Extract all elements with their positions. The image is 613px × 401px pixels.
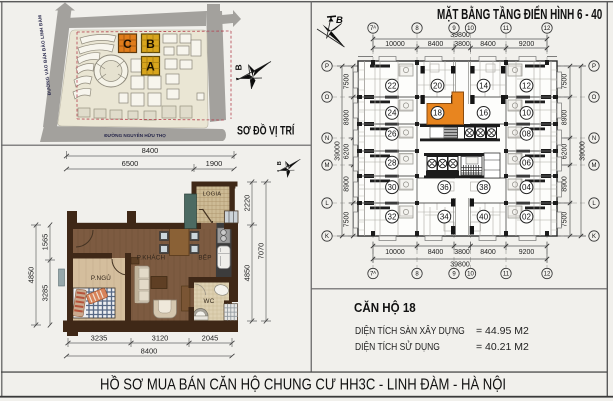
svg-text:7500: 7500 (562, 74, 569, 90)
svg-text:3800: 3800 (454, 41, 470, 48)
svg-text:7500: 7500 (562, 212, 569, 228)
svg-text:7500: 7500 (344, 212, 351, 228)
svg-text:O: O (325, 95, 330, 101)
svg-text:= 40.21 M2: = 40.21 M2 (476, 341, 529, 353)
svg-text:4850: 4850 (27, 267, 36, 284)
svg-text:36: 36 (440, 183, 449, 192)
svg-text:08: 08 (522, 130, 531, 139)
svg-text:16: 16 (479, 109, 488, 118)
svg-text:DIỆN TÍCH SỬ DỤNG: DIỆN TÍCH SỬ DỤNG (355, 340, 440, 352)
svg-text:8400: 8400 (480, 41, 496, 48)
svg-text:LOGIA: LOGIA (203, 192, 222, 198)
svg-text:3285: 3285 (41, 285, 50, 302)
svg-text:02: 02 (522, 212, 531, 221)
svg-text:3120: 3120 (152, 334, 169, 343)
svg-text:P.KHÁCH: P.KHÁCH (137, 253, 166, 262)
svg-text:O: O (592, 95, 597, 101)
svg-text:2220: 2220 (243, 195, 252, 212)
svg-text:10: 10 (522, 109, 531, 118)
svg-text:38: 38 (479, 183, 488, 192)
svg-text:C: C (123, 37, 132, 51)
svg-text:8400: 8400 (428, 249, 444, 256)
svg-text:8400: 8400 (141, 347, 158, 356)
svg-text:6500: 6500 (122, 159, 139, 168)
svg-text:7ᴬ: 7ᴬ (370, 270, 376, 278)
svg-text:8900: 8900 (562, 110, 569, 126)
svg-text:2045: 2045 (202, 334, 219, 343)
svg-text:11: 11 (503, 272, 510, 278)
svg-text:32: 32 (388, 212, 397, 221)
svg-text:K: K (592, 234, 596, 240)
svg-text:20: 20 (433, 81, 442, 90)
svg-text:M: M (592, 163, 597, 169)
svg-text:8900: 8900 (562, 176, 569, 192)
svg-text:6200: 6200 (344, 144, 351, 160)
svg-text:34: 34 (440, 212, 449, 221)
svg-text:7ᴬ: 7ᴬ (370, 24, 376, 32)
svg-text:28: 28 (388, 158, 397, 167)
svg-text:ĐƯỜNG NGUYỄN HỮU THỌ: ĐƯỜNG NGUYỄN HỮU THỌ (104, 131, 166, 138)
svg-text:N: N (325, 136, 329, 142)
svg-text:9200: 9200 (519, 41, 535, 48)
svg-text:P: P (592, 64, 596, 70)
svg-text:3800: 3800 (454, 249, 470, 256)
svg-text:10000: 10000 (385, 249, 405, 256)
svg-text:7070: 7070 (257, 243, 266, 260)
svg-text:4850: 4850 (243, 265, 252, 282)
svg-text:7500: 7500 (344, 74, 351, 90)
svg-text:A: A (146, 60, 155, 74)
svg-text:1565: 1565 (41, 234, 50, 251)
svg-text:DIỆN TÍCH SÀN XÂY DỰNG: DIỆN TÍCH SÀN XÂY DỰNG (355, 325, 465, 336)
svg-text:12: 12 (522, 81, 531, 90)
svg-text:10000: 10000 (385, 41, 405, 48)
svg-text:CĂN HỘ 18: CĂN HỘ 18 (354, 299, 416, 315)
svg-text:40: 40 (479, 212, 488, 221)
svg-text:39800: 39800 (450, 262, 470, 269)
svg-text:22: 22 (388, 81, 397, 90)
svg-text:WC: WC (204, 298, 215, 305)
svg-text:26: 26 (388, 130, 397, 139)
svg-text:B: B (336, 15, 343, 26)
svg-text:10: 10 (467, 26, 474, 32)
svg-text:8900: 8900 (344, 176, 351, 192)
svg-text:14: 14 (479, 81, 488, 90)
svg-text:1900: 1900 (206, 159, 223, 168)
svg-text:24: 24 (388, 109, 397, 118)
svg-text:8900: 8900 (344, 110, 351, 126)
svg-text:9200: 9200 (519, 249, 535, 256)
svg-text:SƠ ĐỒ VỊ TRÍ: SƠ ĐỒ VỊ TRÍ (237, 123, 295, 137)
svg-text:8400: 8400 (480, 249, 496, 256)
svg-text:MẶT BẰNG TẦNG ĐIỂN HÌNH 6 - 40: MẶT BẰNG TẦNG ĐIỂN HÌNH 6 - 40 (437, 5, 602, 23)
svg-text:N: N (592, 136, 596, 142)
svg-text:P.NGỦ: P.NGỦ (91, 273, 111, 282)
svg-text:HỒ SƠ MUA BÁN CĂN HỘ CHUNG CƯ: HỒ SƠ MUA BÁN CĂN HỘ CHUNG CƯ HH3C - LIN… (100, 374, 506, 393)
svg-text:11: 11 (503, 26, 510, 32)
svg-text:6200: 6200 (562, 144, 569, 160)
svg-text:P: P (325, 64, 329, 70)
svg-text:3235: 3235 (91, 334, 108, 343)
svg-text:39000: 39000 (335, 141, 342, 161)
svg-text:39000: 39000 (580, 141, 587, 161)
svg-text:12: 12 (544, 26, 551, 32)
svg-text:12: 12 (544, 272, 551, 278)
svg-text:06: 06 (522, 158, 531, 167)
svg-text:8400: 8400 (142, 146, 159, 155)
svg-text:8400: 8400 (428, 41, 444, 48)
svg-text:K: K (325, 234, 329, 240)
svg-text:10: 10 (467, 272, 474, 278)
svg-text:= 44.95 M2: = 44.95 M2 (476, 325, 529, 337)
svg-text:B: B (146, 37, 155, 51)
svg-text:30: 30 (388, 183, 397, 192)
svg-text:18: 18 (433, 109, 442, 118)
svg-text:04: 04 (522, 183, 531, 192)
svg-text:M: M (325, 163, 330, 169)
